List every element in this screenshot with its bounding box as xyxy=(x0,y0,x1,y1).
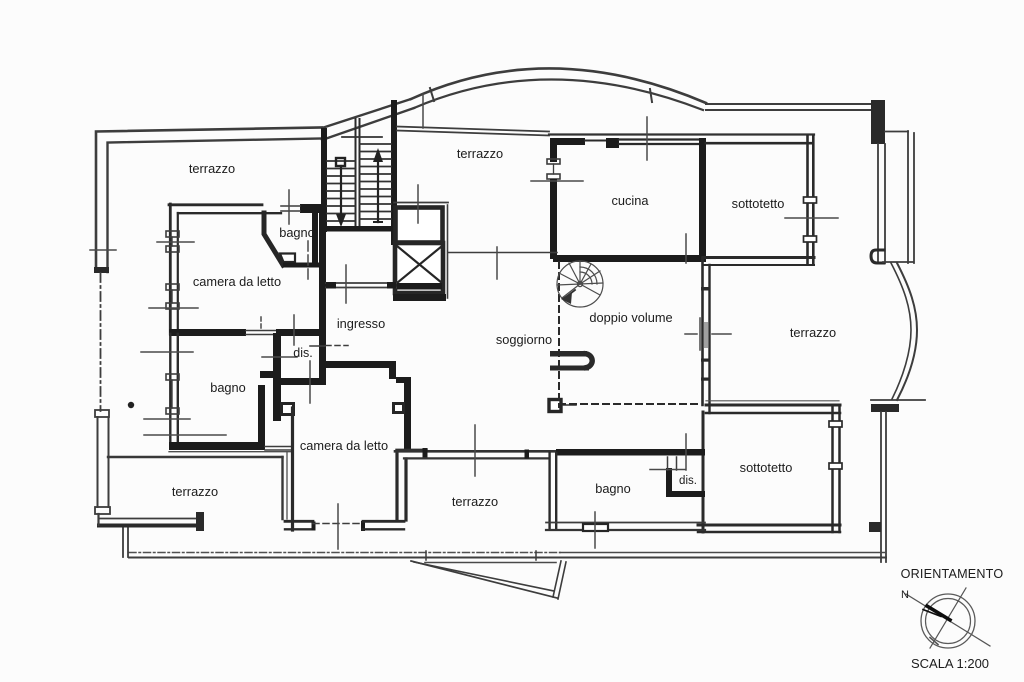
svg-text:cucina: cucina xyxy=(612,193,650,208)
svg-text:terrazzo: terrazzo xyxy=(452,494,498,509)
svg-text:ORIENTAMENTO: ORIENTAMENTO xyxy=(901,567,1004,581)
svg-text:dis.: dis. xyxy=(679,475,697,487)
svg-text:bagno: bagno xyxy=(210,380,246,395)
svg-text:camera da letto: camera da letto xyxy=(300,438,388,453)
svg-text:terrazzo: terrazzo xyxy=(457,146,503,161)
svg-text:N: N xyxy=(901,589,909,601)
svg-text:ingresso: ingresso xyxy=(337,316,385,331)
svg-text:sottotetto: sottotetto xyxy=(732,196,785,211)
svg-text:terrazzo: terrazzo xyxy=(790,325,836,340)
svg-text:terrazzo: terrazzo xyxy=(189,161,235,176)
svg-text:SCALA 1:200: SCALA 1:200 xyxy=(911,656,989,671)
svg-text:sottotetto: sottotetto xyxy=(740,460,793,475)
svg-text:soggiorno: soggiorno xyxy=(496,332,552,347)
svg-text:terrazzo: terrazzo xyxy=(172,484,218,499)
svg-text:camera da letto: camera da letto xyxy=(193,274,281,289)
svg-text:dis.: dis. xyxy=(293,346,312,360)
svg-text:bagno: bagno xyxy=(595,481,631,496)
svg-text:bagno: bagno xyxy=(279,225,315,240)
svg-text:doppio volume: doppio volume xyxy=(589,310,672,325)
